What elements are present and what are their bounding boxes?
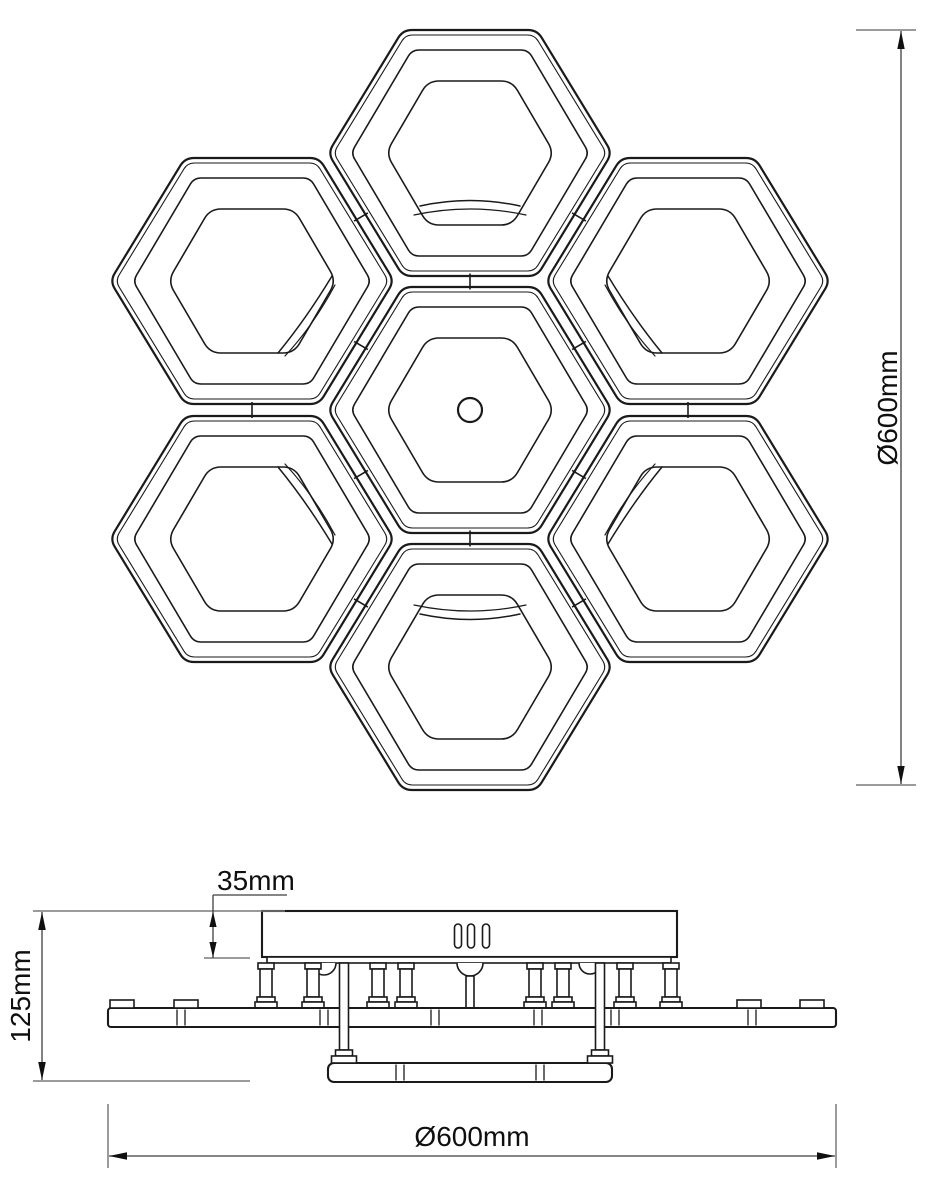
module-outer-rim-line [335,292,604,528]
hex-module-bottom-left [112,416,391,662]
plate-top-tab [737,1000,761,1008]
label-overall-width: Ø600mm [414,1121,529,1152]
hex-module-bottom [330,544,609,790]
arrowhead-down [209,942,216,958]
diffuser-arc-detail [278,276,332,353]
module-outer-rim-line [553,421,822,657]
module-outer-edge [112,416,391,662]
module-diffuser-line [389,595,552,739]
module-outer-rim-line [335,549,604,785]
module-outer-edge [548,416,827,662]
arrowhead-down [897,766,904,784]
plate-top-tab [800,1000,824,1008]
dimension-fixture-height: 125mm [5,911,285,1081]
post-collar [305,963,321,969]
standoff-post [557,969,569,997]
drop-post-base [332,1056,357,1063]
diffuser-arc-detail [608,276,662,353]
diffuser-arc-detail [414,209,526,215]
label-canopy-thickness: 35mm [217,865,295,896]
diffuser-arc-detail [414,605,526,611]
module-outer-rim-line [335,35,604,271]
standoff-post [372,969,384,997]
diffuser-arc-detail [278,467,332,544]
post-collar [398,963,414,969]
post-collar [370,963,386,969]
arrowhead-right [817,1152,835,1159]
module-connector-tab [354,341,368,349]
module-outer-edge [548,158,827,404]
standoff-post [307,969,319,997]
diffuser-arc-detail [608,467,662,544]
canopy-bottom-lip [267,957,671,963]
module-diffuser-line [607,209,770,353]
diffuser-arc-detail [420,614,520,620]
plate-top-tab [110,1000,134,1008]
arrowhead-left [109,1152,127,1159]
module-outer-edge [330,287,609,533]
drop-post [340,963,349,1050]
standoff-post [260,969,272,997]
module-connector-tab [354,470,368,478]
module-diffuser-line [389,338,552,482]
post-collar [617,963,633,969]
standoff-post [665,969,677,997]
module-outer-rim-line [117,163,386,399]
canopy-housing [262,911,677,957]
technical-drawing-canvas: Ø600mm Ø600mm 125mm [0,0,932,1190]
diffuser-arc-detail [420,201,520,207]
standoff-post [400,969,412,997]
hex-module-top-right [548,158,827,404]
module-diffuser-line [607,467,770,611]
module-outer-edge [112,158,391,404]
arrowhead-up [38,912,46,930]
module-diffuser-line [171,467,334,611]
hex-module-center [330,287,609,533]
center-stem [466,976,474,1008]
post-collar [555,963,571,969]
side-view-profile [108,911,836,1082]
post-collar [663,963,679,969]
module-outer-rim-line [117,421,386,657]
drop-post-base [588,1056,613,1063]
module-outer-edge [330,544,609,790]
arrowhead-up [897,31,904,49]
plate-top-tab [174,1000,198,1008]
drop-post-collar [336,1050,353,1056]
dimension-overall-height: Ø600mm [856,30,916,785]
hex-panel-plate [108,1008,836,1027]
standoff-post [529,969,541,997]
post-collar [527,963,543,969]
top-view-hexagon-panels [112,30,827,790]
standoff-post [619,969,631,997]
module-outer-rim-line [553,163,822,399]
module-outer-edge [330,30,609,276]
standoff-dome [457,963,483,976]
label-fixture-height: 125mm [5,949,36,1042]
module-connector-tab [572,470,586,478]
center-mounting-hole [458,398,482,422]
dimension-overall-width: Ø600mm [108,1104,836,1168]
module-diffuser-line [389,81,552,225]
arrowhead-up [209,912,216,928]
post-collar [258,963,274,969]
hex-module-bottom-right [548,416,827,662]
arrowhead-down [38,1062,46,1080]
hex-module-top-left [112,158,391,404]
drop-post-collar [592,1050,609,1056]
module-connector-tab [572,341,586,349]
drop-post [596,963,605,1050]
module-diffuser-line [171,209,334,353]
hex-module-top [330,30,609,276]
label-overall-height: Ø600mm [872,350,903,465]
drawing-sheet: Ø600mm Ø600mm 125mm [0,0,932,1190]
lower-hex-panel [328,1063,612,1082]
